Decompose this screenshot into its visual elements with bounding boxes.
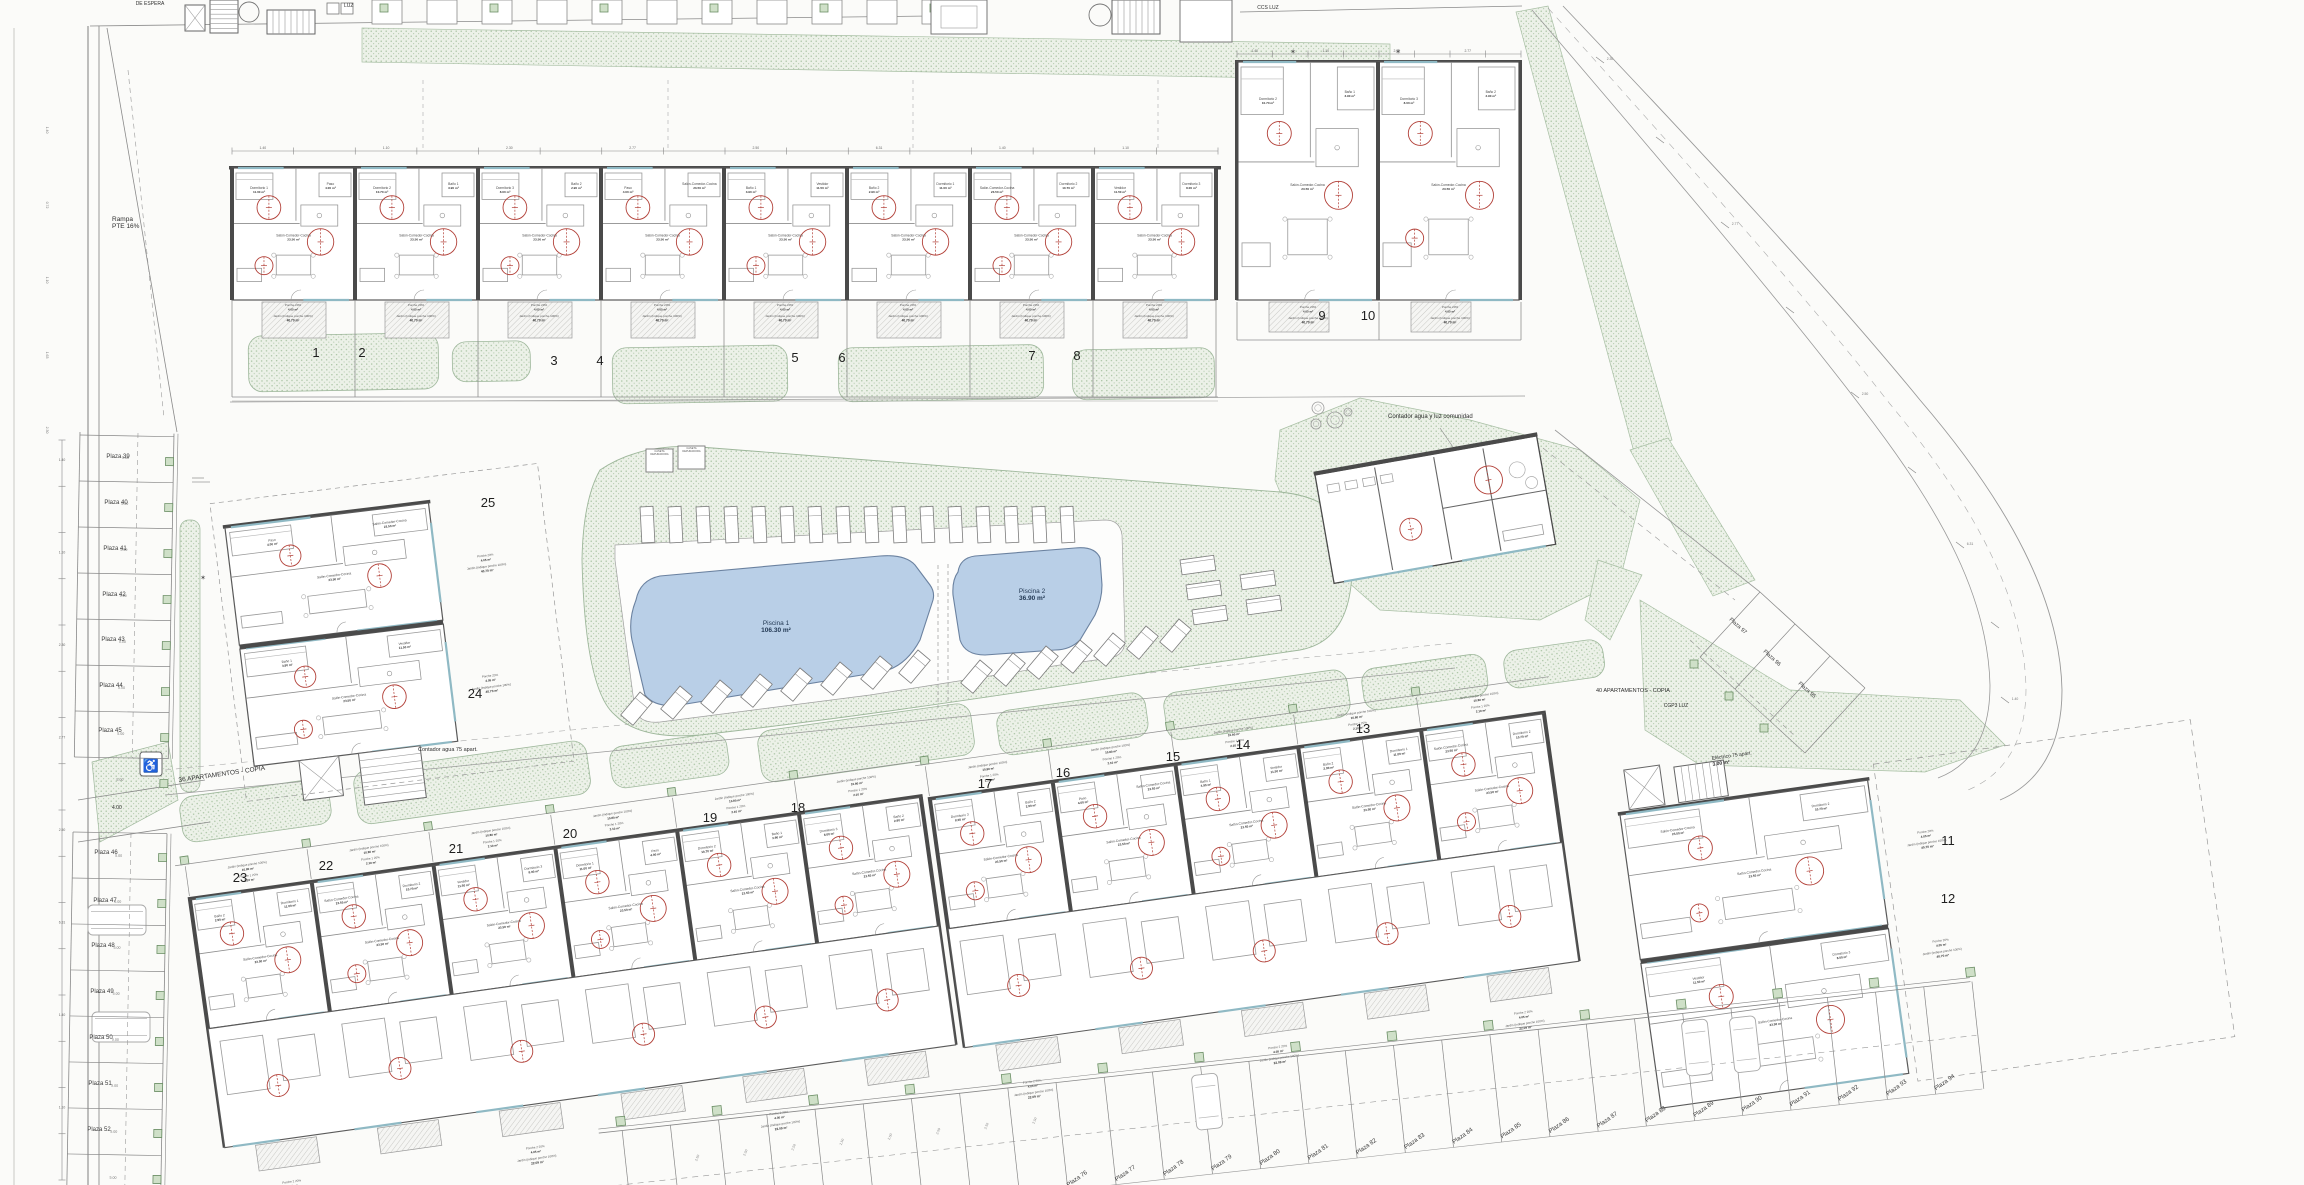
svg-text:23.50 m²: 23.50 m²: [410, 238, 422, 242]
svg-text:Porche 20%: Porche 20%: [1146, 303, 1163, 307]
svg-text:✶: ✶: [1290, 48, 1296, 56]
svg-text:3.90 m²: 3.90 m²: [448, 186, 459, 190]
parking-space-label: Plaza 93: [1886, 1079, 1909, 1098]
svg-text:Porche 20%: Porche 20%: [1442, 305, 1459, 309]
svg-text:Porche 20%: Porche 20%: [408, 303, 425, 307]
plot-number-1: 1: [312, 345, 319, 360]
svg-text:Jardín (Indique porche 100%): Jardín (Indique porche 100%): [1430, 316, 1470, 320]
svg-text:1.40: 1.40: [1251, 49, 1258, 53]
svg-text:10.70 m²: 10.70 m²: [1062, 186, 1074, 190]
svg-text:11.00 m²: 11.00 m²: [253, 190, 265, 194]
svg-text:2.30: 2.30: [1607, 57, 1614, 61]
svg-text:1.40: 1.40: [260, 146, 267, 150]
svg-text:22.09 m²: 22.09 m²: [1028, 1094, 1041, 1100]
block-plots-9-10: Salón-Comedor-Cocina23.50 m²Dormitorio 2…: [1235, 60, 1522, 340]
plot-number-21: 21: [449, 841, 463, 856]
svg-text:10.80 m²: 10.80 m²: [363, 849, 375, 855]
svg-text:2.50: 2.50: [839, 1138, 845, 1146]
svg-text:2.10 m²: 2.10 m²: [609, 826, 620, 831]
svg-text:1.10: 1.10: [1122, 146, 1129, 150]
svg-text:Jardín (Indique porche 100%): Jardín (Indique porche 100%): [396, 314, 436, 318]
svg-text:4.05 m²: 4.05 m²: [1445, 310, 1455, 314]
svg-text:40.70 m²: 40.70 m²: [485, 688, 498, 694]
svg-text:4.00 m²: 4.00 m²: [623, 190, 634, 194]
site-plan-drawing: 1.400.721.101.632.302.302.772.506.311.40…: [0, 0, 2304, 1185]
dimension-chain: 1.401.102.302.772.506.311.401.10: [59, 440, 66, 1180]
svg-text:22.09 m²: 22.09 m²: [531, 1160, 544, 1166]
parking-space-label: Plaza 94: [1934, 1073, 1957, 1092]
svg-text:40.70 m²: 40.70 m²: [1921, 844, 1934, 850]
svg-text:10.80 m²: 10.80 m²: [729, 798, 741, 804]
svg-text:10.80 m²: 10.80 m²: [1350, 715, 1362, 721]
svg-text:5.00: 5.00: [113, 992, 120, 996]
parking-space-label: Plaza 76: [1066, 1170, 1089, 1185]
svg-text:5.00: 5.00: [111, 1084, 118, 1088]
plot-number-24: 24: [468, 686, 482, 701]
plot-number-10: 10: [1361, 308, 1375, 323]
svg-text:1.10: 1.10: [59, 551, 66, 555]
svg-text:40.70 m²: 40.70 m²: [902, 319, 915, 323]
svg-text:Porche 20%: Porche 20%: [654, 303, 671, 307]
svg-text:4.05 m²: 4.05 m²: [903, 308, 913, 312]
svg-text:11.50 m²: 11.50 m²: [816, 186, 828, 190]
svg-text:10.70 m²: 10.70 m²: [1262, 101, 1274, 105]
parking-space-label: Plaza 80: [1259, 1148, 1282, 1167]
parking-space-label: Plaza 84: [1452, 1127, 1475, 1146]
parking-space-label: Plaza 97: [1728, 617, 1748, 636]
parking-space-label: Plaza 87: [1596, 1111, 1619, 1130]
svg-text:1.10: 1.10: [1322, 49, 1329, 53]
parking-space-label: Plaza 43: [101, 637, 125, 643]
svg-text:5.00: 5.00: [110, 1130, 117, 1134]
plot-number-5: 5: [791, 350, 798, 365]
svg-text:22.09 m²: 22.09 m²: [774, 1126, 787, 1132]
svg-text:4.05 m²: 4.05 m²: [1149, 308, 1159, 312]
parking-space-label: Plaza 82: [1355, 1138, 1378, 1157]
svg-text:4.00 m²: 4.00 m²: [325, 186, 336, 190]
plot-number-12: 12: [1941, 891, 1955, 906]
svg-text:11.00 m²: 11.00 m²: [939, 186, 951, 190]
svg-text:40.70 m²: 40.70 m²: [1302, 321, 1315, 325]
svg-text:8.00 m²: 8.00 m²: [1404, 101, 1415, 105]
svg-text:✶: ✶: [200, 574, 206, 582]
svg-text:Porche 20%: Porche 20%: [777, 303, 794, 307]
svg-text:2.77: 2.77: [1732, 222, 1739, 226]
svg-text:4.05 m²: 4.05 m²: [411, 308, 421, 312]
svg-text:2.90 m²: 2.90 m²: [571, 186, 582, 190]
svg-text:Porche 20%: Porche 20%: [285, 303, 302, 307]
parking-space-label: Plaza 92: [1837, 1084, 1860, 1103]
svg-text:4.05 m²: 4.05 m²: [1303, 310, 1313, 314]
svg-text:4.05 m²: 4.05 m²: [485, 678, 496, 683]
svg-text:22.09 m²: 22.09 m²: [1519, 1025, 1532, 1031]
plot-number-13: 13: [1356, 721, 1370, 736]
svg-text:10.80 m²: 10.80 m²: [607, 815, 619, 821]
svg-text:4.05 m²: 4.05 m²: [1026, 308, 1036, 312]
plot-number-6: 6: [838, 350, 845, 365]
parking-space-label: Plaza 52: [87, 1127, 111, 1133]
svg-text:4.05 m²: 4.05 m²: [780, 308, 790, 312]
svg-text:40.70 m²: 40.70 m²: [287, 319, 300, 323]
parking-space-label: Plaza 88: [1645, 1105, 1668, 1124]
svg-text:40.70 m²: 40.70 m²: [533, 319, 546, 323]
svg-text:1.40: 1.40: [59, 458, 66, 462]
plot-number-2: 2: [358, 345, 365, 360]
parking-space-label: Plaza 49: [90, 989, 114, 995]
svg-text:2.30: 2.30: [506, 146, 513, 150]
svg-text:11.50 m²: 11.50 m²: [1114, 190, 1126, 194]
svg-text:2.10 m²: 2.10 m²: [1107, 760, 1118, 765]
svg-text:5.00: 5.00: [112, 1038, 119, 1042]
plot-number-9: 9: [1318, 308, 1325, 323]
svg-text:4.05 m²: 4.05 m²: [288, 308, 298, 312]
parking-space-label: Plaza 46: [94, 850, 118, 856]
parking-space-label: Plaza 96: [1762, 649, 1782, 668]
svg-text:22.09 m²: 22.09 m²: [1273, 1059, 1286, 1065]
parking-space-label: Plaza 83: [1404, 1132, 1427, 1151]
site-plan: 1.400.721.101.632.302.302.772.506.311.40…: [0, 0, 2304, 1185]
svg-text:2.50: 2.50: [791, 1143, 797, 1151]
svg-text:23.50 m²: 23.50 m²: [1148, 238, 1160, 242]
parking-space-label: Plaza 50: [89, 1035, 113, 1041]
svg-text:2.50: 2.50: [59, 828, 66, 832]
parking-space-label: Plaza 45: [98, 728, 122, 734]
svg-text:23.50 m²: 23.50 m²: [1301, 187, 1313, 191]
svg-text:23.50 m²: 23.50 m²: [991, 190, 1003, 194]
svg-text:2.10 m²: 2.10 m²: [853, 792, 864, 797]
svg-text:6.31: 6.31: [59, 921, 66, 925]
parking-space-label: Plaza 40: [104, 500, 128, 506]
svg-text:1.40: 1.40: [45, 127, 49, 134]
svg-text:♿: ♿: [143, 758, 159, 773]
svg-text:4.05 m²: 4.05 m²: [1936, 942, 1947, 947]
svg-text:Jardín (Indique porche 100%): Jardín (Indique porche 100%): [1134, 314, 1174, 318]
parking-space-label: Plaza 39: [106, 454, 130, 460]
svg-text:23.50 m²: 23.50 m²: [1025, 238, 1037, 242]
svg-text:1.40: 1.40: [59, 1013, 66, 1017]
svg-text:23.50 m²: 23.50 m²: [693, 186, 705, 190]
svg-text:Jardín (Indique porche 100%): Jardín (Indique porche 100%): [1011, 314, 1051, 318]
svg-text:2.10 m²: 2.10 m²: [488, 843, 499, 848]
svg-text:2.30: 2.30: [1393, 49, 1400, 53]
svg-text:2.90 m²: 2.90 m²: [1485, 94, 1496, 98]
svg-text:10.80 m²: 10.80 m²: [982, 766, 994, 772]
svg-text:1.40: 1.40: [2012, 697, 2019, 701]
svg-text:1.63: 1.63: [45, 352, 49, 359]
svg-text:6.31: 6.31: [1967, 542, 1974, 546]
svg-text:5.00: 5.00: [109, 1176, 116, 1180]
svg-text:1.10: 1.10: [59, 1106, 66, 1110]
svg-text:4.05 m²: 4.05 m²: [657, 308, 667, 312]
svg-text:10.80 m²: 10.80 m²: [1105, 749, 1117, 755]
svg-text:2.50: 2.50: [742, 1149, 748, 1157]
svg-text:40.70 m²: 40.70 m²: [481, 568, 494, 574]
svg-text:1.10: 1.10: [383, 146, 390, 150]
svg-text:2.30: 2.30: [45, 427, 49, 434]
svg-text:8.00 m²: 8.00 m²: [500, 190, 511, 194]
svg-text:4.05 m²: 4.05 m²: [534, 308, 544, 312]
svg-text:4.05 m²: 4.05 m²: [480, 557, 491, 562]
plot-number-20: 20: [563, 826, 577, 841]
svg-text:23.50 m²: 23.50 m²: [902, 238, 914, 242]
plot-number-18: 18: [791, 800, 805, 815]
svg-text:40.70 m²: 40.70 m²: [410, 319, 423, 323]
svg-text:4.05 m²: 4.05 m²: [1921, 833, 1932, 838]
svg-text:3.90 m²: 3.90 m²: [1344, 94, 1355, 98]
plot-number-17: 17: [978, 776, 992, 791]
svg-text:10.70 m²: 10.70 m²: [376, 190, 388, 194]
svg-text:8.00 m²: 8.00 m²: [1186, 186, 1197, 190]
svg-text:0.72: 0.72: [45, 202, 49, 209]
svg-text:40.70 m²: 40.70 m²: [1148, 319, 1161, 323]
svg-text:10.80 m²: 10.80 m²: [485, 832, 497, 838]
parking-space-label: Plaza 77: [1114, 1164, 1137, 1183]
svg-text:2.50: 2.50: [1032, 1117, 1038, 1125]
svg-text:23.50 m²: 23.50 m²: [287, 238, 299, 242]
svg-text:Jardín (Indique porche 100%): Jardín (Indique porche 100%): [642, 314, 682, 318]
plot-number-3: 3: [550, 353, 557, 368]
svg-text:4.05 m²: 4.05 m²: [531, 1149, 542, 1154]
svg-text:1.10: 1.10: [45, 277, 49, 284]
plot-number-7: 7: [1028, 348, 1035, 363]
parking-space-label: Plaza 81: [1307, 1143, 1330, 1162]
svg-text:4.05 m²: 4.05 m²: [774, 1115, 785, 1120]
svg-text:23.50 m²: 23.50 m²: [533, 238, 545, 242]
svg-text:Jardín (Indique porche 100%): Jardín (Indique porche 100%): [765, 314, 805, 318]
parking-space-label: Plaza 78: [1163, 1159, 1186, 1178]
svg-text:Porche 20%: Porche 20%: [1300, 305, 1317, 309]
parking-space-label: Plaza 44: [99, 683, 123, 689]
svg-text:2.50: 2.50: [694, 1154, 700, 1162]
svg-text:2.30: 2.30: [59, 643, 66, 647]
svg-text:2.50: 2.50: [753, 146, 760, 150]
svg-text:23.50 m²: 23.50 m²: [779, 238, 791, 242]
svg-text:Porche 20%: Porche 20%: [900, 303, 917, 307]
parking-space-label: Plaza 41: [103, 546, 127, 552]
svg-text:3.90 m²: 3.90 m²: [746, 190, 757, 194]
svg-text:40.70 m²: 40.70 m²: [1025, 319, 1038, 323]
plot-number-4: 4: [596, 353, 603, 368]
svg-text:2.77: 2.77: [629, 146, 636, 150]
svg-text:Jardín (Indique porche 100%): Jardín (Indique porche 100%): [888, 314, 928, 318]
parking-space-label: Plaza 48: [91, 943, 115, 949]
plot-number-14: 14: [1236, 737, 1250, 752]
svg-text:10.80 m²: 10.80 m²: [1473, 697, 1485, 703]
parking-space-label: Plaza 90: [1741, 1095, 1764, 1114]
svg-text:40.70 m²: 40.70 m²: [1444, 321, 1457, 325]
svg-text:Porche 20%: Porche 20%: [1023, 303, 1040, 307]
svg-text:23.50 m²: 23.50 m²: [1442, 187, 1454, 191]
parking-space-label: Plaza 51: [88, 1081, 112, 1087]
svg-text:5.00: 5.00: [116, 778, 123, 782]
plot-number-8: 8: [1073, 348, 1080, 363]
svg-text:6.31: 6.31: [876, 146, 883, 150]
svg-text:2.10 m²: 2.10 m²: [731, 809, 742, 814]
svg-text:4.05 m²: 4.05 m²: [1519, 1014, 1530, 1019]
svg-text:2.10 m²: 2.10 m²: [1476, 708, 1487, 713]
plot-number-11: 11: [1941, 833, 1955, 848]
svg-text:40.70 m²: 40.70 m²: [656, 319, 669, 323]
svg-text:2.50: 2.50: [1862, 392, 1869, 396]
parking-space-label: Plaza 86: [1548, 1116, 1571, 1135]
svg-text:2.90 m²: 2.90 m²: [869, 190, 880, 194]
svg-text:2.50: 2.50: [935, 1127, 941, 1135]
svg-text:40.70 m²: 40.70 m²: [1936, 953, 1949, 959]
svg-text:10.80 m²: 10.80 m²: [851, 781, 863, 787]
plot-number-16: 16: [1056, 765, 1070, 780]
plot-number-15: 15: [1166, 749, 1180, 764]
parking-space-label: Plaza 47: [93, 898, 117, 904]
svg-text:2.50: 2.50: [887, 1133, 893, 1141]
parking-space-label: Plaza 79: [1211, 1154, 1234, 1173]
svg-text:1.40: 1.40: [999, 146, 1006, 150]
plot-number-19: 19: [703, 810, 717, 825]
plot-number-25: 25: [481, 495, 495, 510]
svg-text:Porche 20%: Porche 20%: [531, 303, 548, 307]
svg-text:Jardín (Indique porche 100%): Jardín (Indique porche 100%): [519, 314, 559, 318]
svg-text:40.70 m²: 40.70 m²: [779, 319, 792, 323]
svg-text:23.50 m²: 23.50 m²: [656, 238, 668, 242]
svg-text:Jardín (Indique porche 100%): Jardín (Indique porche 100%): [273, 314, 313, 318]
parking-space-label: Plaza 91: [1789, 1089, 1812, 1108]
plot-number-23: 23: [233, 870, 247, 885]
parking-space-label: Plaza 85: [1500, 1121, 1523, 1140]
svg-text:2.77: 2.77: [59, 736, 66, 740]
parking-space-label: Plaza 42: [102, 592, 126, 598]
plot-number-22: 22: [319, 858, 333, 873]
svg-text:2.50: 2.50: [983, 1122, 989, 1130]
svg-text:2.77: 2.77: [1464, 49, 1471, 53]
dimension-chain: 1.401.102.302.772.506.311.401.10: [232, 146, 1218, 155]
svg-text:2.10 m²: 2.10 m²: [366, 860, 377, 865]
